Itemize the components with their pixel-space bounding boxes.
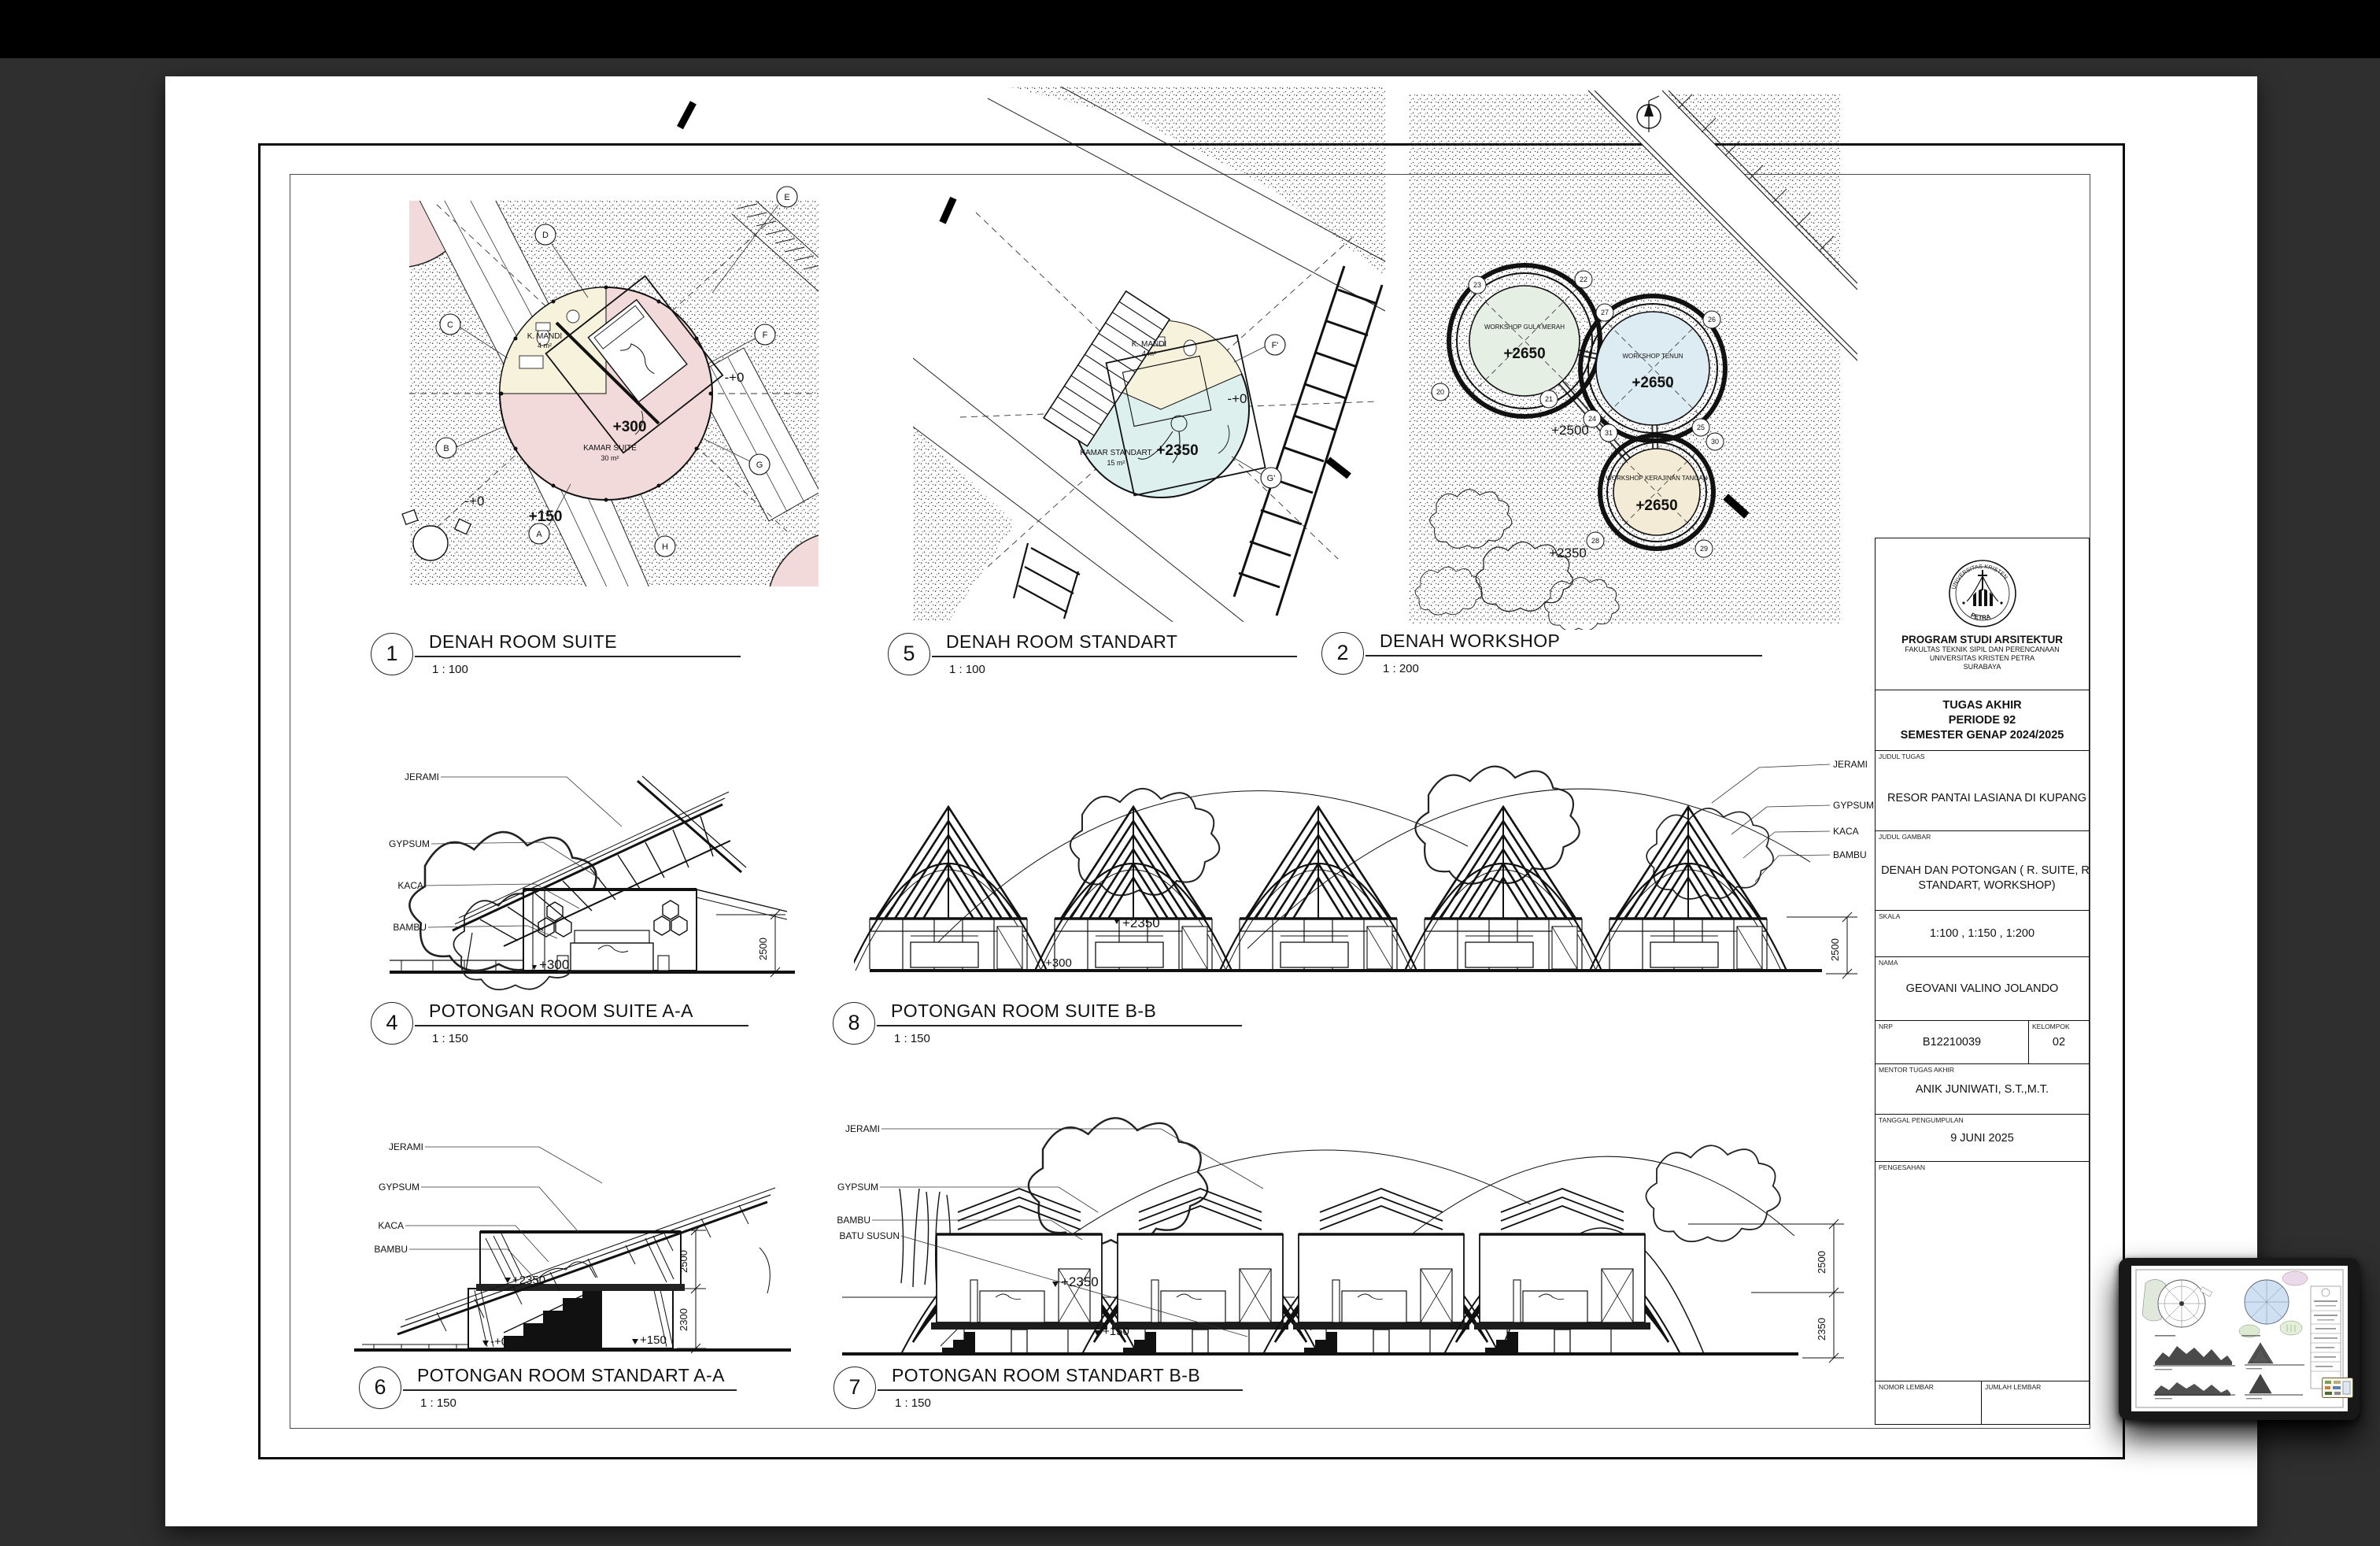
material-label: KACA [378,1220,404,1231]
grid-bubble: A [536,530,542,539]
material-label: BAMBU [393,922,427,933]
grid-bubble: B [443,444,449,453]
elevation-label: +2650 [1632,375,1673,391]
screen: K. MANDI 4 m² +300 KAMAR SUITE 30 m² +15… [0,0,2380,1546]
material-label: BAMBU [1833,849,1867,860]
elevation-label: +2350 [1061,1274,1099,1289]
scale-value: 1:100 , 1:150 , 1:200 [1876,911,2089,956]
view-number-bubble: 8 [833,1002,875,1045]
elevation-label: +150 [1103,1325,1129,1338]
section-cut-marker [677,101,697,129]
dimension-label: 2300 [678,1308,689,1331]
view-title-potongan-standart-aa: 6 POTONGAN ROOM STANDART A-A 1 : 150 [359,1365,737,1410]
view-title: POTONGAN ROOM STANDART A-A [403,1365,737,1386]
dimension-label: 2500 [678,1250,689,1273]
student-id: B12210039 [1923,1036,1981,1049]
view-scale: 1 : 100 [415,663,741,676]
title-block-judul-tugas: JUDUL TUGAS RESOR PANTAI LASIANA DI KUPA… [1876,751,2089,831]
view-title-denah-room-suite: 1 DENAH ROOM SUITE 1 : 100 [371,631,741,676]
view-number-bubble: 1 [371,633,413,675]
title-block-mentor: MENTOR TUGAS AKHIR ANIK JUNIWATI, S.T.,M… [1876,1064,2089,1115]
material-label: KACA [1833,826,1859,837]
view-scale: 1 : 200 [1366,662,1762,675]
svg-text:27: 27 [1601,309,1609,316]
svg-text:22: 22 [1580,276,1587,283]
svg-text:15 m²: 15 m² [1107,459,1125,467]
view-scale: 1 : 150 [403,1396,737,1410]
sheet-title: DENAH DAN POTONGAN ( R. SUITE, R. STANDA… [1876,831,2089,911]
svg-text:30: 30 [1711,438,1719,446]
elevation-label: -+0 [724,370,744,385]
mini-title-block [2311,1286,2341,1389]
institution-city: SURABAYA [1964,663,2001,671]
svg-text:31: 31 [1605,429,1613,437]
svg-text:4 m²: 4 m² [1142,350,1156,357]
elevation-label: +2350 [1156,442,1198,459]
view-title: POTONGAN ROOM SUITE A-A [415,1000,748,1022]
color-chip-badge[interactable] [2322,1378,2353,1398]
material-label: JERAMI [405,771,439,782]
elevation-label: +2350 [512,1274,545,1287]
svg-defs [0,63,8,71]
room-label: K. MANDI [527,332,562,341]
view-title-potongan-suite-bb: 8 POTONGAN ROOM SUITE B-B 1 : 150 [833,1000,1242,1045]
material-label: JERAMI [389,1141,423,1152]
elevation-label: +150 [529,509,563,525]
view-scale: 1 : 150 [878,1396,1243,1410]
grid-bubble: F [763,331,768,340]
material-label: BAMBU [837,1215,870,1226]
view-title: DENAH ROOM STANDART [932,631,1297,653]
elevation-label: +2350 [1549,546,1587,560]
svg-text:25: 25 [1697,423,1705,431]
view-scale: 1 : 150 [415,1032,748,1045]
drawing-sheet: K. MANDI 4 m² +300 KAMAR SUITE 30 m² +15… [165,76,2257,1526]
grid-bubble: C [447,320,453,330]
dimension-label: 2500 [1816,1251,1828,1274]
view-title-denah-workshop: 2 DENAH WORKSHOP 1 : 200 [1321,631,1762,675]
room-label: KAMAR STANDART [1080,449,1151,457]
section-potongan-room-standart-aa: JERAMI GYPSUM KACA BAMBU +2350 -+0 +150 … [342,1122,803,1381]
view-title-rule [415,656,741,657]
title-block-tanggal: TANGGAL PENGUMPULAN 9 JUNI 2025 [1876,1115,2089,1162]
svg-text:20: 20 [1436,388,1444,396]
dimension-label: 2500 [1829,938,1841,961]
plan-denah-room-standart: K. MANDI 4 m² -+0 KAMAR STANDART 15 m² +… [913,87,1385,622]
page-preview-window[interactable] [2119,1258,2360,1420]
grid-bubble: D [542,231,549,240]
elevation-label: +2350 [1122,915,1160,930]
room-label: KAMAR SUITE [583,444,637,453]
elevation-label: +2500 [1551,423,1589,438]
view-title-denah-room-standart: 5 DENAH ROOM STANDART 1 : 100 [888,631,1297,676]
svg-text:24: 24 [1588,415,1596,423]
view-title: POTONGAN ROOM SUITE B-B [877,1000,1242,1022]
elevation-label: -+0 [490,1335,508,1348]
institution-faculty: FAKULTAS TEKNIK SIPIL DAN PERENCANAAN [1905,645,2059,654]
title-block-course: TUGAS AKHIR PERIODE 92 SEMESTER GENAP 20… [1876,690,2089,751]
view-title-potongan-standart-bb: 7 POTONGAN ROOM STANDART B-B 1 : 150 [833,1365,1243,1410]
material-label: KACA [397,880,423,891]
material-label: JERAMI [845,1123,880,1134]
title-block: UNIVERSITAS KRISTEN PETRA PROGRAM STUDI … [1875,538,2090,1425]
project-title: RESOR PANTAI LASIANA DI KUPANG [1876,751,2089,831]
material-label: BAMBU [374,1244,408,1255]
section-potongan-room-standart-bb: JERAMI GYPSUM BAMBU BATU SUSUN +2350 +15… [822,1094,1861,1381]
workshop-label: WORKSHOP GULA MERAH [1484,324,1565,331]
page-preview-sheet[interactable] [2131,1266,2348,1411]
view-title-potongan-suite-aa: 4 POTONGAN ROOM SUITE A-A 1 : 150 [371,1000,748,1045]
top-black-bar [0,0,2380,58]
material-label: GYPSUM [389,838,430,849]
elevation-label: +300 [1045,956,1072,970]
grid-bubble: F' [1272,341,1279,350]
svg-text:23: 23 [1473,281,1481,289]
section-potongan-room-suite-bb: +2350 +300 JERAMI GYPSUM KACA BAMBU 2500 [854,728,1877,992]
room-label: K. MANDI [1132,340,1166,349]
institution-program: PROGRAM STUDI ARSITEKTUR [1901,634,2063,645]
university-logo: UNIVERSITAS KRISTEN PETRA [1946,557,2019,630]
grid-bubble: H [662,542,668,552]
elevation-label: +300 [539,957,569,972]
dimension-label: 2350 [1816,1318,1828,1341]
elevation-label: -+0 [464,494,484,509]
view-scale: 1 : 150 [877,1032,1242,1045]
svg-text:26: 26 [1708,316,1716,324]
title-block-institution: UNIVERSITAS KRISTEN PETRA PROGRAM STUDI … [1876,538,2089,690]
workshop-label: WORKSHOP KERAJINAN TANGAN [1606,475,1708,482]
svg-text:30 m²: 30 m² [601,454,619,462]
title-block-nrp-kelompok: NRP B12210039 KELOMPOK 02 [1876,1021,2089,1064]
plan-denah-room-suite: K. MANDI 4 m² +300 KAMAR SUITE 30 m² +15… [382,87,822,598]
view-number-bubble: 6 [359,1367,401,1409]
title-block-nama: NAMA GEOVANI VALINO JOLANDO [1876,957,2089,1021]
elevation-label: +150 [640,1333,667,1347]
elevation-label: +2650 [1503,346,1545,362]
material-label: BATU SUSUN [840,1230,900,1241]
view-title: DENAH WORKSHOP [1366,631,1762,652]
elevation-label: -+0 [1227,391,1247,406]
grid-bubble: G [756,460,763,470]
view-number-bubble: 4 [371,1002,413,1045]
group-number: 02 [2053,1036,2065,1049]
view-number-bubble: 5 [888,633,930,675]
view-number-bubble: 7 [833,1367,876,1409]
grid-bubble: E [784,193,789,202]
plan-denah-workshop: 20 21 22 23 24 25 26 27 28 29 30 31 WORK… [1409,87,1857,630]
title-block-lembar: NOMOR LEMBAR JUMLAH LEMBAR [1876,1381,2089,1425]
material-label: GYPSUM [1833,800,1874,811]
elevation-label: +2650 [1635,497,1677,514]
material-label: GYPSUM [837,1182,878,1193]
svg-text:28: 28 [1591,537,1599,545]
title-block-judul-gambar: JUDUL GAMBAR DENAH DAN POTONGAN ( R. SUI… [1876,831,2089,911]
workshop-label: WORKSHOP TENUN [1622,353,1683,360]
material-label: JERAMI [1833,759,1868,770]
elevation-label: +300 [613,419,647,435]
page-preview-content [2131,1266,2348,1411]
title-block-pengesahan: PENGESAHAN [1876,1162,2089,1381]
view-title: DENAH ROOM SUITE [415,631,741,653]
title-block-skala: SKALA 1:100 , 1:150 , 1:200 [1876,911,2089,957]
institution-university: UNIVERSITAS KRISTEN PETRA [1930,654,2034,663]
view-number-bubble: 2 [1321,632,1364,675]
svg-text:4 m²: 4 m² [538,342,552,350]
svg-text:21: 21 [1545,395,1553,403]
svg-text:29: 29 [1700,545,1708,553]
view-scale: 1 : 100 [932,663,1297,676]
student-name: GEOVANI VALINO JOLANDO [1876,957,2089,1020]
dimension-label: 2500 [757,938,769,960]
view-title: POTONGAN ROOM STANDART B-B [878,1365,1243,1386]
material-label: GYPSUM [379,1182,419,1193]
section-potongan-room-suite-aa: JERAMI GYPSUM KACA BAMBU +300 2500 [378,732,807,992]
grid-bubble: G' [1267,474,1276,483]
